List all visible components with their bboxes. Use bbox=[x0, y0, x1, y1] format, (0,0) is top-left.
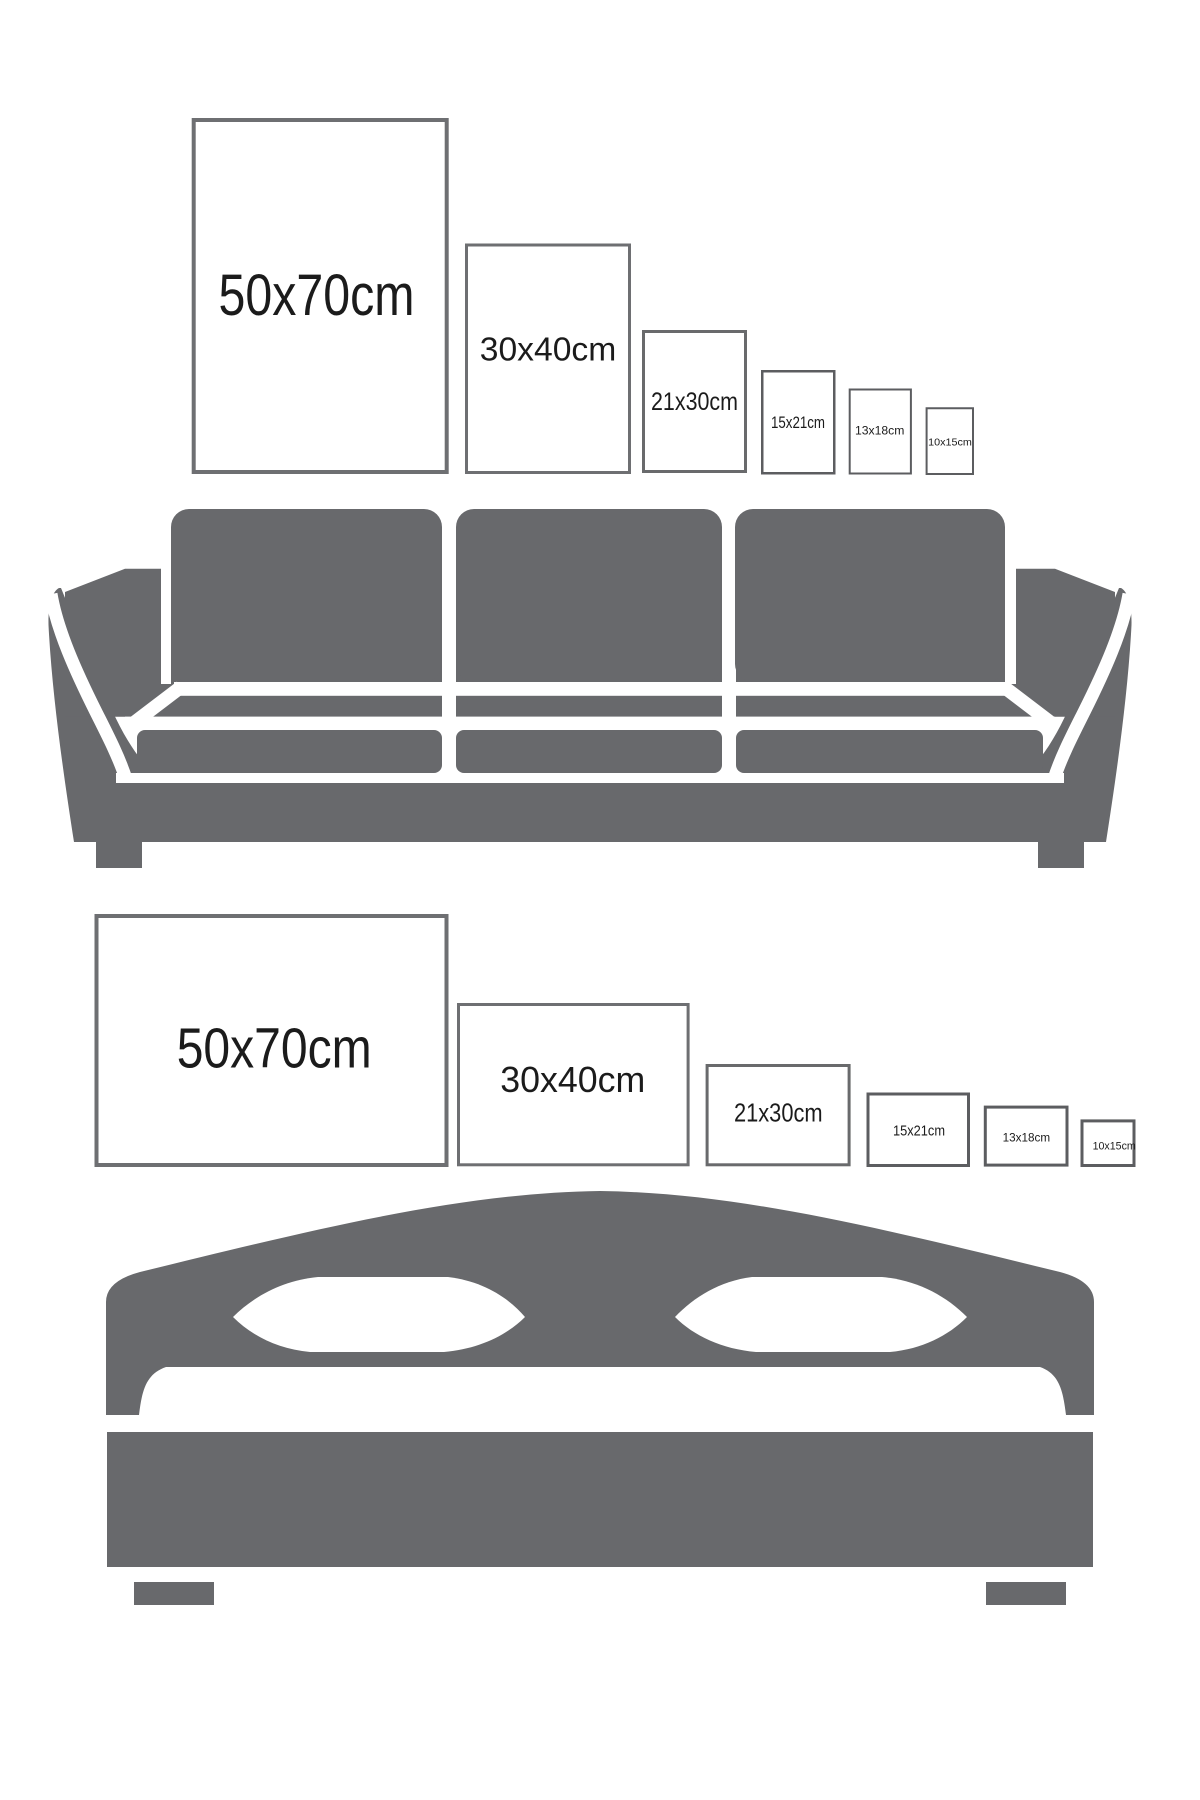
svg-text:21x30cm: 21x30cm bbox=[651, 388, 738, 416]
svg-text:15x21cm: 15x21cm bbox=[893, 1124, 945, 1140]
svg-text:30x40cm: 30x40cm bbox=[480, 331, 617, 368]
svg-text:13x18cm: 13x18cm bbox=[1003, 1132, 1051, 1145]
svg-text:13x18cm: 13x18cm bbox=[855, 424, 905, 438]
svg-text:50x70cm: 50x70cm bbox=[177, 1016, 372, 1080]
svg-text:10x15cm: 10x15cm bbox=[1093, 1141, 1136, 1153]
svg-text:30x40cm: 30x40cm bbox=[500, 1059, 645, 1100]
svg-text:15x21cm: 15x21cm bbox=[771, 414, 825, 432]
svg-text:21x30cm: 21x30cm bbox=[734, 1097, 823, 1127]
svg-text:50x70cm: 50x70cm bbox=[219, 263, 415, 328]
svg-text:10x15cm: 10x15cm bbox=[928, 437, 972, 449]
